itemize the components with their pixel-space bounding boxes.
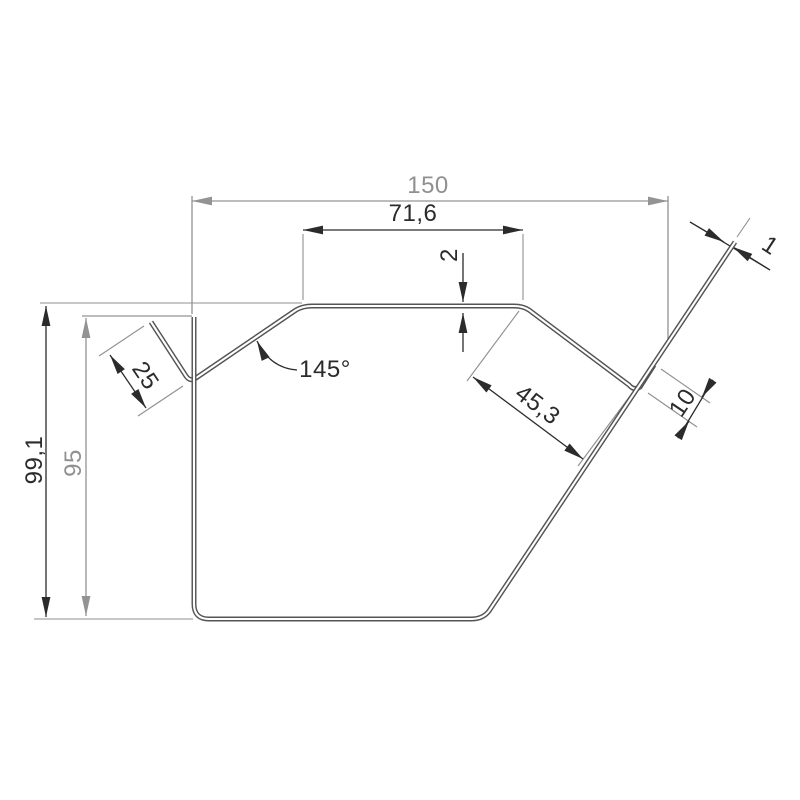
label-bend-angle: 145° (299, 356, 351, 383)
profile-drawing-svg: 150 71,6 2 145° 25 45,3 10 1 99,1 95 (0, 0, 800, 800)
label-overall-height: 99,1 (21, 436, 48, 485)
ext-flange-tip (99, 326, 144, 356)
technical-drawing-canvas: 150 71,6 2 145° 25 45,3 10 1 99,1 95 (0, 0, 800, 800)
angle-leader (257, 341, 297, 370)
ext-slope-top (467, 311, 519, 381)
dimension-lines (46, 201, 770, 617)
label-top-flat-width: 71,6 (389, 200, 438, 227)
extension-lines (34, 196, 750, 619)
dim-hem-arrow-upper (702, 380, 713, 397)
profile-tray-core (194, 242, 735, 619)
label-left-flange: 25 (126, 357, 164, 395)
label-overall-width: 150 (407, 172, 449, 199)
label-hem: 10 (664, 384, 702, 422)
dim-hem-arrow-lower (678, 421, 689, 438)
ext-slope-bottom (578, 396, 630, 466)
label-wall-height: 95 (60, 449, 87, 477)
label-right-slope: 45,3 (510, 380, 565, 431)
label-thickness: 1 (757, 231, 783, 261)
profile-cap-core (151, 306, 654, 389)
label-top-step: 2 (436, 248, 463, 262)
profile-tray-outline (194, 242, 735, 619)
ext-thickness (737, 218, 750, 237)
profile-geometry (151, 242, 735, 619)
dim-thickness-arrow-left (690, 222, 724, 242)
dimension-labels: 150 71,6 2 145° 25 45,3 10 1 99,1 95 (21, 172, 783, 484)
